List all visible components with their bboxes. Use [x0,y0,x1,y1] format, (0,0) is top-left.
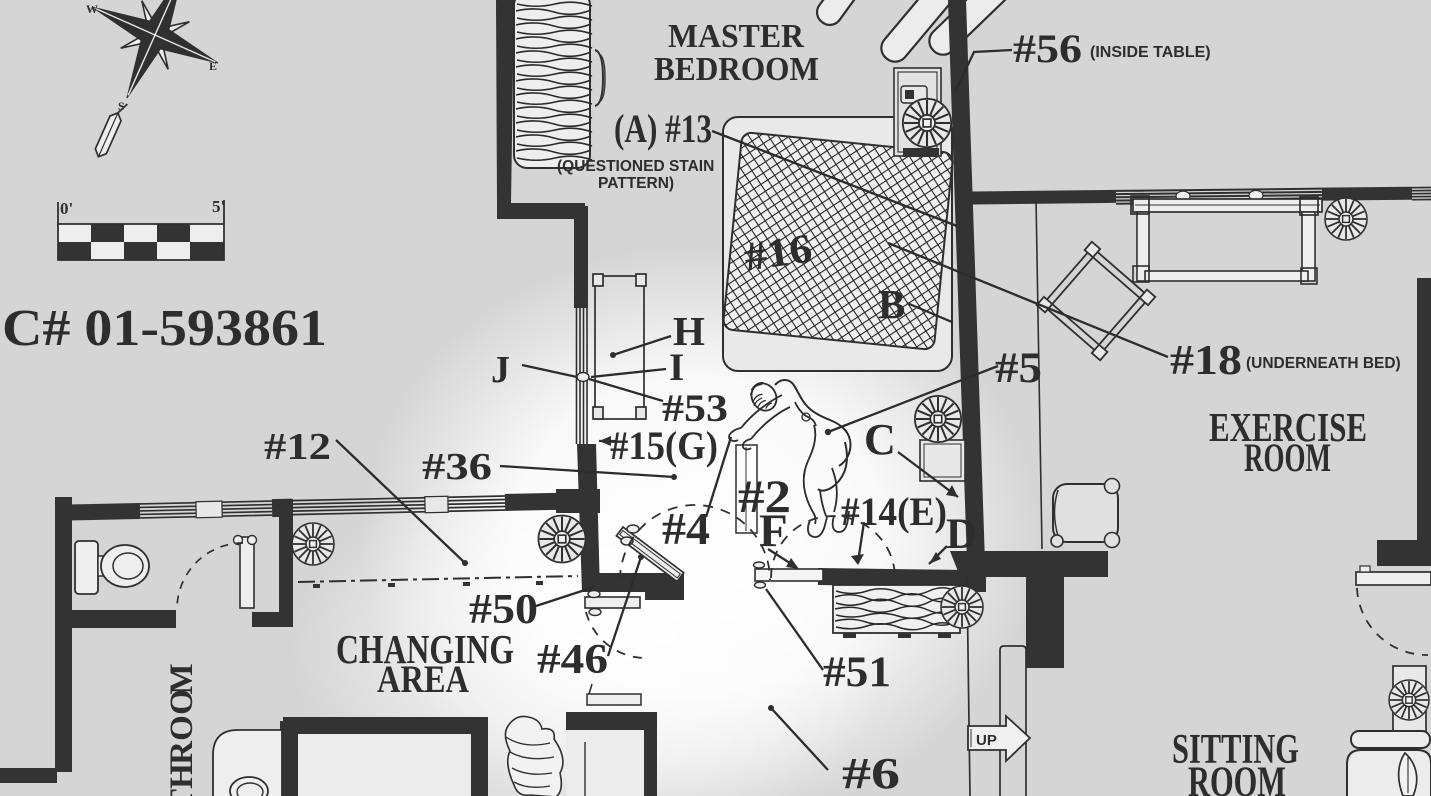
svg-text:5': 5' [212,197,225,216]
svg-text:H: H [164,763,200,789]
svg-text:#51: #51 [823,649,891,696]
svg-text:#36: #36 [422,446,492,488]
svg-text:D: D [946,511,977,558]
svg-text:J: J [491,349,510,391]
svg-text:#4: #4 [662,504,710,554]
svg-text:B: B [878,281,905,327]
svg-text:R: R [164,740,200,765]
svg-text:O: O [164,715,200,741]
svg-text:F: F [759,505,788,557]
svg-text:#6: #6 [842,749,900,796]
svg-text:#14(E): #14(E) [841,489,947,534]
svg-text:#15(G): #15(G) [610,423,718,468]
svg-text:AREA: AREA [377,658,469,701]
svg-text:(UNDERNEATH BED): (UNDERNEATH BED) [1246,355,1401,372]
svg-text:(QUESTIONED STAIN: (QUESTIONED STAIN [557,158,714,175]
svg-text:E: E [209,59,217,73]
svg-text:C: C [864,415,896,464]
svg-text:#56: #56 [1013,26,1082,71]
svg-text:#12: #12 [264,426,331,468]
svg-text:UP: UP [976,732,997,749]
svg-text:T: T [164,789,200,796]
svg-text:PATTERN): PATTERN) [598,175,674,192]
svg-text:I: I [669,346,684,389]
svg-text:#16: #16 [741,224,815,279]
svg-text:W: W [86,2,98,16]
svg-text:#46: #46 [537,637,608,683]
svg-text:ROOM: ROOM [1244,435,1331,480]
svg-text:(A) #13: (A) #13 [614,106,712,151]
svg-text:ROOM: ROOM [1188,759,1286,796]
svg-text:MASTER: MASTER [668,18,804,55]
svg-text:#18: #18 [1170,338,1242,384]
svg-text:O: O [164,689,200,715]
svg-text:BEDROOM: BEDROOM [654,51,819,88]
svg-text:C# 01-593861: C# 01-593861 [2,300,327,357]
svg-text:0': 0' [60,199,73,218]
svg-text:#5: #5 [995,345,1042,392]
svg-text:(INSIDE TABLE): (INSIDE TABLE) [1090,44,1211,61]
